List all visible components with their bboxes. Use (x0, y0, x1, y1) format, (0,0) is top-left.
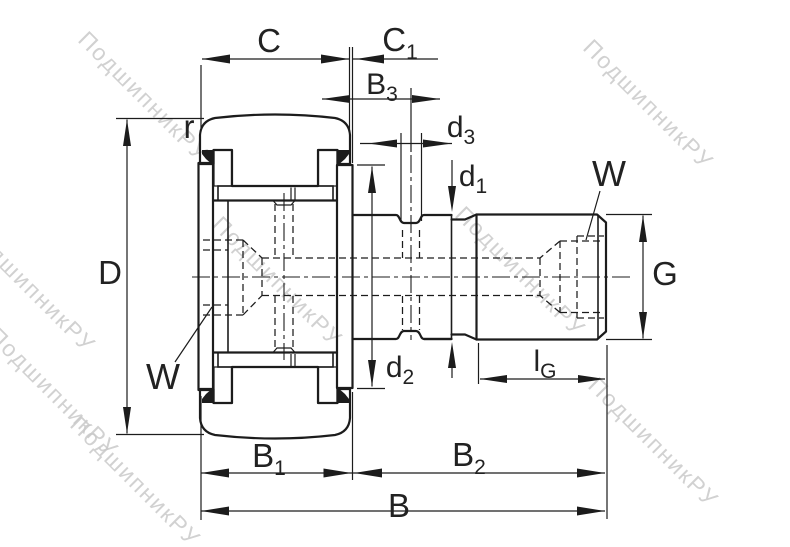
dim-label-W-right: W (592, 153, 626, 194)
dim-label-C: C (257, 22, 281, 59)
bearing-cross-section-drawing: ПодшипникРУ ПодшипникРУ ПодшипникРУ Подш… (0, 0, 790, 547)
dim-label-B: B (388, 487, 410, 524)
dim-label-r: r (184, 108, 195, 145)
dim-label-W-left: W (146, 356, 180, 397)
technical-drawing-page: ПодшипникРУ ПодшипникРУ ПодшипникРУ Подш… (0, 0, 790, 547)
dim-label-G: G (652, 255, 678, 292)
dim-label-D: D (98, 254, 122, 291)
